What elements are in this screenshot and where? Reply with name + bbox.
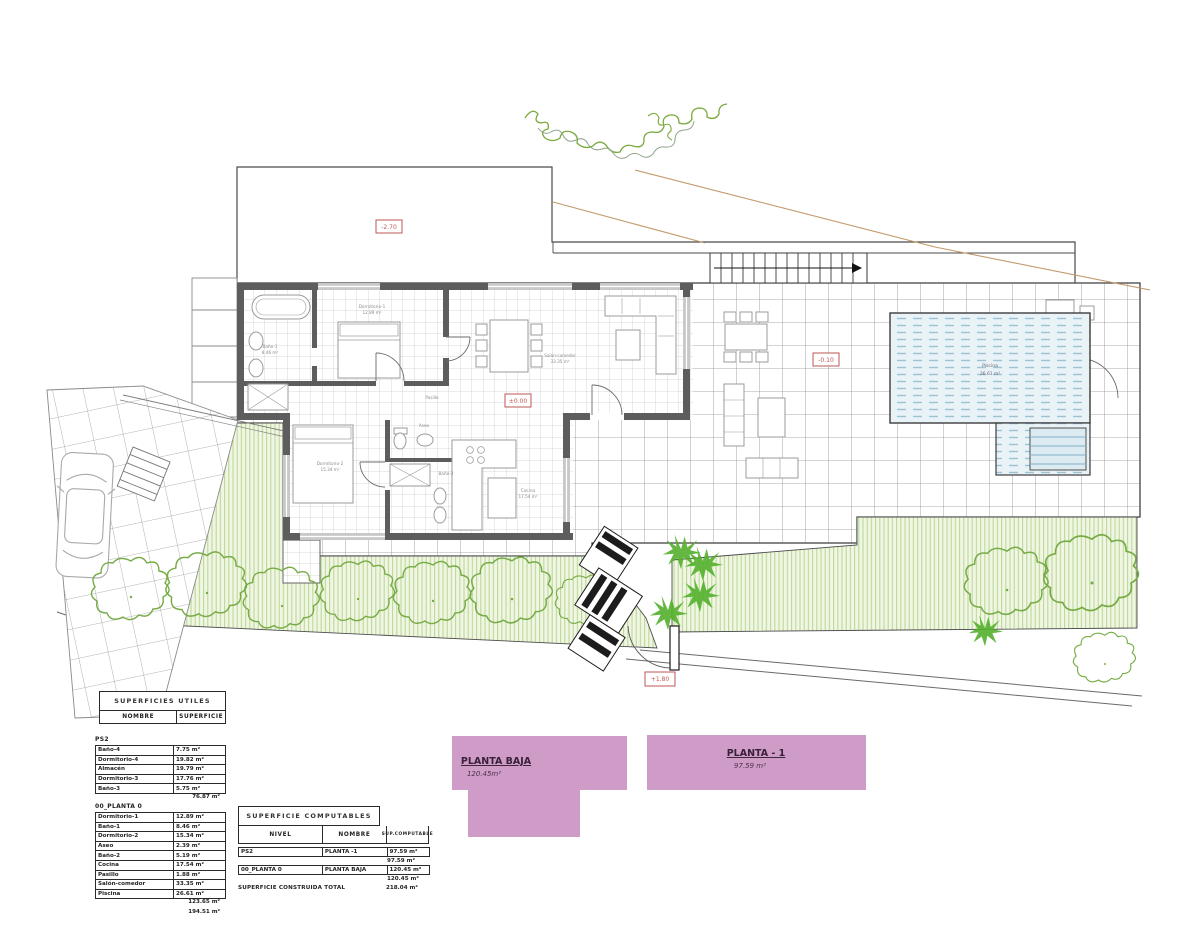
sink: [249, 359, 263, 377]
computables-total-value: 218.04 m²: [386, 885, 418, 891]
computables-subtotal: 120.45 m²: [387, 876, 430, 882]
planta-baja-area: 120.45m²: [467, 770, 501, 778]
svg-text:-2.70: -2.70: [381, 224, 397, 231]
plot-boundary: [237, 167, 1075, 283]
room-label-bano1: Baño-1: [263, 344, 278, 349]
svg-text:33.35 m²: 33.35 m²: [550, 359, 569, 364]
computables-total-label: SUPERFICIE CONSTRUIDA TOTAL: [238, 885, 386, 891]
pool-area-label: 26.61 m²: [980, 371, 1000, 377]
table-row: Dormitorio-215.34 m²: [96, 832, 225, 842]
table-row: Dormitorio-317.76 m²: [96, 775, 225, 785]
table-row: Almacén19.79 m²: [96, 765, 225, 775]
svg-text:+1.80: +1.80: [651, 676, 670, 683]
floor-plan-sheet: { "plan": { "elevation_labels": { "upper…: [0, 0, 1200, 940]
svg-text:±0.00: ±0.00: [509, 398, 528, 405]
planta-baja-shape: PLANTA BAJA 120.45m²: [452, 736, 627, 837]
dining-table: [476, 320, 542, 372]
table-row: Dormitorio-112.89 m²: [96, 813, 225, 823]
utiles-col-superficie: SUPERFICIE: [176, 711, 225, 723]
utiles-section1-total: 76.87 m²: [95, 794, 226, 800]
toilet: [394, 428, 407, 449]
room-label-aseo: Aseo: [419, 423, 430, 428]
bed: [338, 322, 400, 378]
svg-text:15.34 m²: 15.34 m²: [320, 467, 339, 472]
planta-minus1-shape: PLANTA - 1 97.59 m²: [647, 735, 866, 790]
computables-col-nombre: NOMBRE: [322, 826, 386, 843]
elevation-zero: ±0.00: [505, 394, 531, 407]
room-label-cocina: Cocina: [521, 488, 536, 493]
table-row: Aseo2.39 m²: [96, 842, 225, 852]
room-label-pasillo: Pasillo: [425, 395, 439, 400]
table-row: Baño-25.19 m²: [96, 851, 225, 861]
room-label-dormitorio2: Dormitorio-2: [317, 461, 344, 466]
table-row: Baño-35.75 m²: [96, 784, 225, 793]
coffee-table: [616, 330, 640, 360]
section-label-planta0: 00_PLANTA 0: [95, 803, 226, 810]
pool-label: Piscina: [982, 363, 998, 369]
svg-text:-0.10: -0.10: [818, 357, 834, 364]
computables-subtotal: 97.59 m²: [387, 858, 430, 864]
outdoor-dining-table: [724, 312, 768, 362]
utiles-title: SUPERFICIES UTILES: [99, 691, 226, 711]
computables-col-sup: SUP.COMPUTABLE: [386, 826, 428, 843]
table-row: 00_PLANTA 0 PLANTA BAJA 120.45 m²: [238, 865, 430, 875]
bathtub: [252, 295, 310, 319]
shower: [390, 464, 430, 486]
computables-title: SUPERFICIE COMPUTABLES: [238, 806, 380, 826]
svg-text:8.46 m²: 8.46 m²: [262, 350, 279, 355]
section-label-ps2: PS2: [95, 736, 226, 743]
landing-tiles: [283, 540, 320, 583]
utiles-col-nombre: NOMBRE: [100, 711, 176, 723]
table-row: Pasillo1.88 m²: [96, 871, 225, 881]
planta-minus1-title: PLANTA - 1: [727, 748, 786, 759]
svg-text:12.89 m²: 12.89 m²: [362, 310, 381, 315]
table-row: Dormitorio-419.82 m²: [96, 756, 225, 766]
room-label-dormitorio1: Dormitorio-1: [359, 304, 386, 309]
planta-minus1-area: 97.59 m²: [734, 762, 766, 770]
planta-baja-title: PLANTA BAJA: [461, 756, 532, 767]
elevation-minus270: -2.70: [376, 220, 402, 233]
table-row: Piscina26.61 m²: [96, 890, 225, 899]
car: [53, 452, 117, 579]
elevation-minus010: -0.10: [813, 353, 839, 366]
utiles-section2-rows: Dormitorio-112.89 m² Baño-18.46 m² Dormi…: [95, 812, 226, 899]
bidet: [434, 507, 446, 523]
vegetation-contour: [525, 104, 727, 158]
toilet: [434, 488, 446, 504]
superficie-computables-table: SUPERFICIE COMPUTABLES NIVEL NOMBRE SUP.…: [238, 806, 430, 891]
utiles-section1-rows: Baño-47.75 m² Dormitorio-419.82 m² Almac…: [95, 745, 226, 794]
shower: [248, 384, 288, 410]
retaining-steps: [192, 278, 237, 420]
utiles-grand-total: 194.51 m²: [95, 909, 226, 915]
sink: [417, 434, 433, 446]
sink: [249, 332, 263, 350]
superficies-utiles-table: SUPERFICIES UTILES NOMBRE SUPERFICIE PS2…: [99, 691, 226, 915]
pool-steps: [1030, 428, 1086, 470]
svg-text:17.54 m²: 17.54 m²: [518, 494, 537, 499]
table-row: Baño-47.75 m²: [96, 746, 225, 756]
entry-stairs: [710, 253, 867, 283]
room-label-bano2: Baño-2: [439, 471, 454, 476]
table-row: Baño-18.46 m²: [96, 823, 225, 833]
table-row: Salón-comedor33.35 m²: [96, 880, 225, 890]
computables-col-nivel: NIVEL: [239, 826, 322, 843]
kitchen-island: [488, 478, 516, 518]
computables-total-row: SUPERFICIE CONSTRUIDA TOTAL 218.04 m²: [238, 885, 430, 891]
room-label-salon: Salón-comedor: [544, 353, 576, 358]
table-row: Cocina17.54 m²: [96, 861, 225, 871]
table-row: PS2 PLANTA -1 97.59 m²: [238, 847, 430, 857]
utiles-section2-total: 123.65 m²: [95, 899, 226, 905]
elevation-plus180: +1.80: [645, 672, 675, 686]
